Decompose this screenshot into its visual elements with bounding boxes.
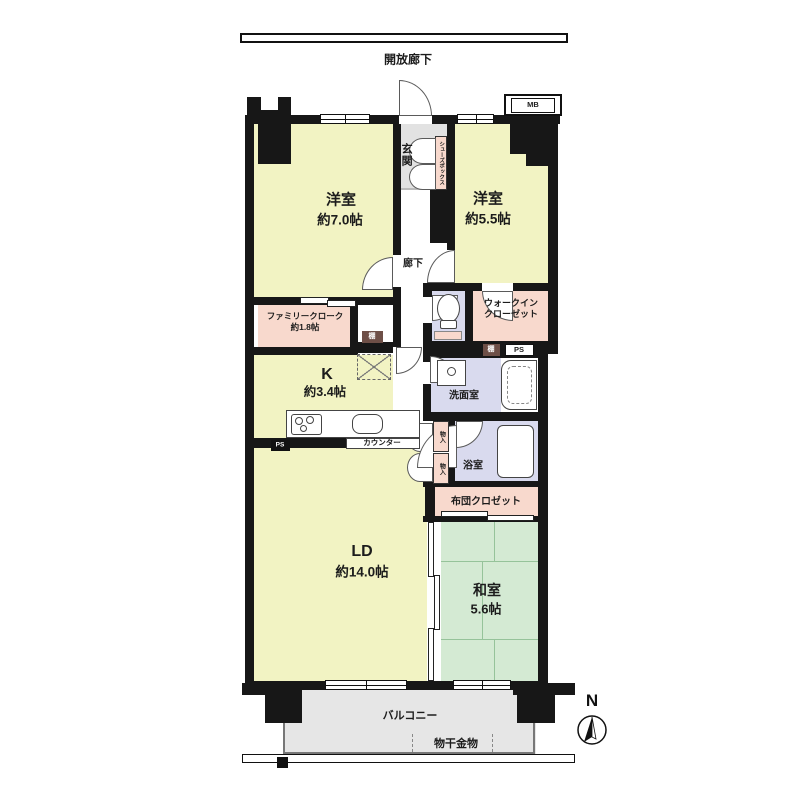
room1-name: 洋室 [326,193,356,210]
laundry-mark [412,734,413,752]
window-bottom-ld [325,680,407,690]
shelf-kitchen-label: 棚 [369,333,376,341]
tatami-line [482,561,483,639]
storage2-label: 物入 [438,463,445,475]
laundry-label: 物干金物 [434,738,478,750]
window-top-room1 [320,114,370,124]
fridge-space [357,354,391,380]
counter-label: カウンター [363,439,401,447]
shoebox-label: シューズボックス [438,141,444,185]
wall-left [245,115,254,690]
wall-toilet-top [423,283,473,291]
window-top-room2 [457,114,494,124]
kitchen-size: 約3.4帖 [304,385,346,399]
wall-under-shoebox [430,187,447,243]
washroom-label: 洗面室 [449,390,479,401]
wall-corridor-right [447,190,455,250]
wall-genkan-right [447,123,455,190]
balcony-label: バルコニー [383,710,438,722]
open-corridor-rail [240,33,568,43]
open-corridor-label: 開放廊下 [384,53,432,66]
column-bottom-right [517,695,555,723]
storage1-label: 物入 [438,431,445,443]
ps-kitchen-label: PS [276,441,285,448]
wall-toilet-left-a [423,291,432,297]
washitsu-size: 5.6帖 [470,603,501,618]
hallway-label: 廊下 [403,258,423,269]
shoebox-door-arc [409,164,436,190]
column-top-right-lower [526,154,558,166]
wall-kitchen-top [253,347,357,355]
room2-size: 約5.5帖 [465,211,511,226]
shoebox-door-arc [409,138,436,164]
column-notch [261,97,278,110]
tatami-line [440,561,538,562]
toilet-bowl [437,294,460,323]
wall-below-counter [253,438,346,448]
entrance-door-arc [399,80,432,116]
wall-wic-left [465,291,473,342]
partition-panel [428,522,434,577]
bathroom-label: 浴室 [463,460,483,471]
column-bottom-left-bar [242,683,302,695]
ld-name: LD [351,543,372,561]
column-bottom-left [265,695,302,723]
ground-rail [242,754,575,763]
ground-post [277,757,288,768]
window-bottom-washitsu [453,680,511,690]
floor-plan: 開放廊下 MB [0,0,800,800]
ld-size: 約14.0帖 [335,564,388,579]
room1-size: 約7.0帖 [317,212,363,227]
kitchen-sink [352,414,383,434]
toilet-shelf [434,331,462,340]
tatami-line [440,639,538,640]
shelf-washroom-label: 棚 [488,346,495,354]
meter-box-label: MB [527,101,539,109]
family-cloak-size: 約1.8帖 [291,323,320,333]
north-label: N [586,691,598,710]
compass: N [572,688,612,752]
washitsu-name: 和室 [473,583,501,599]
toilet-tank [440,320,457,329]
wic-label-2: クローゼット [484,309,538,319]
tatami-line [494,522,495,561]
cloak-sliding-door [300,297,329,304]
partition-panel [434,575,440,630]
column-top-left-lower [258,124,291,164]
partition-panel [428,628,434,681]
entrance-gap [399,115,432,124]
futon-sliding-door [487,515,534,521]
stove-burner [306,416,314,424]
ps-label: PS [514,346,524,354]
stove-burner [295,417,303,425]
vanity-faucet [447,367,456,376]
wall-bath-top [423,412,538,421]
family-cloak-name: ファミリークローク [267,312,344,322]
laundry-mark [492,734,493,752]
room2-name: 洋室 [473,192,503,209]
column-bottom-right-bar [513,683,575,695]
column-top-right [510,124,558,154]
wall-right-lower [538,345,548,690]
bathtub [497,425,534,478]
stove-burner [300,425,307,432]
futon-closet-label: 布団クロゼット [451,496,521,507]
washer-outline [507,366,532,404]
genkan-label: 玄関 [400,143,412,167]
wall-kitchen-right [393,305,401,347]
cloak-sliding-door [327,300,356,307]
tatami-line [494,639,495,681]
kitchen-name: K [321,366,333,384]
wall-futon-left [425,487,435,516]
wic-door-gap [482,283,513,291]
wic-label-1: ウォークイン [484,298,538,308]
futon-sliding-door [441,511,488,517]
wall-fridge-top [357,342,393,353]
